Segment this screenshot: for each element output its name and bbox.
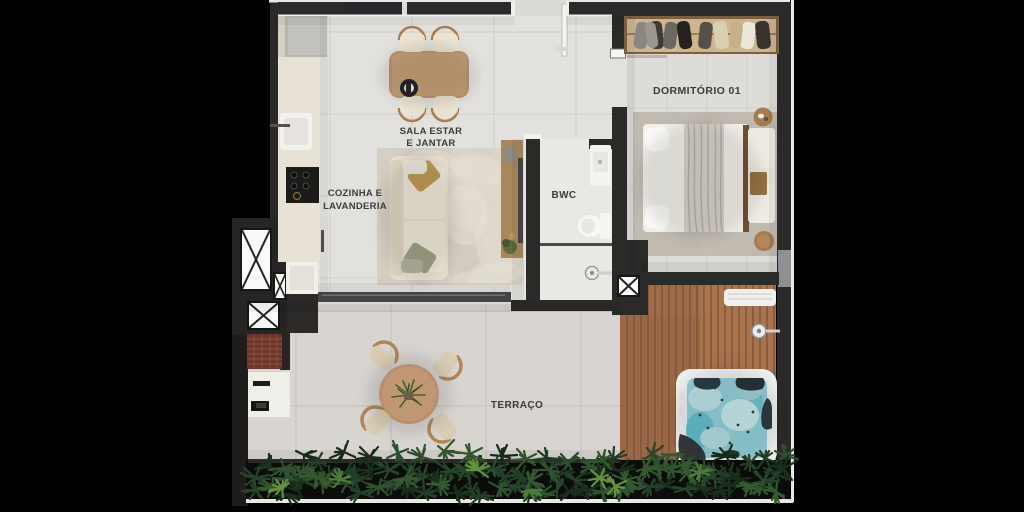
svg-text:DORMITÓRIO 01: DORMITÓRIO 01 <box>653 84 741 97</box>
svg-text:BWC: BWC <box>551 190 576 201</box>
svg-text:LAVANDERIA: LAVANDERIA <box>323 201 387 212</box>
svg-text:COZINHA E: COZINHA E <box>328 188 383 199</box>
svg-text:SALA ESTAR: SALA ESTAR <box>400 126 463 137</box>
svg-text:TERRAÇO: TERRAÇO <box>491 400 543 411</box>
svg-text:E JANTAR: E JANTAR <box>406 138 455 149</box>
